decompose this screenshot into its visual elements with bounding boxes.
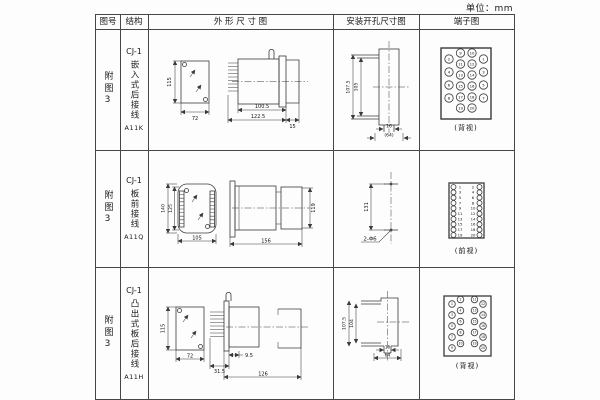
terminal-pin (451, 206, 456, 211)
terminal-number: 18 (470, 94, 475, 99)
dim-label: (64) (384, 133, 393, 139)
type-label: 凸出式板后接线 (128, 299, 140, 369)
terminal-number: 10 (471, 206, 476, 211)
terminal-number: 12 (471, 211, 476, 216)
code-label: A11H (124, 373, 144, 381)
terminal-number: 3 (451, 313, 453, 317)
header-structure: 结构 (120, 15, 148, 29)
terminal-number: 12 (470, 61, 475, 66)
dim-label: 72 (192, 116, 198, 122)
figure-text: 附图3 (102, 71, 115, 108)
dim-label: 9.5 (245, 353, 253, 359)
header-outline: 外 形 尺 寸 图 (148, 15, 333, 29)
model-label: CJ-1 (126, 286, 142, 295)
terminal-pin (451, 185, 456, 190)
terminal-pin (477, 211, 482, 216)
terminal-number: 6 (459, 320, 461, 324)
terminal-pin (477, 201, 482, 206)
front-view: 115 72 (161, 307, 205, 362)
terminal-number: 4 (448, 69, 451, 74)
terminal-number: 9 (459, 206, 462, 211)
mounting-diagram-a11q: 131 2-Φ6 (333, 150, 419, 267)
mounting-diagram-a11k: 107.5 105 16 (64) (333, 29, 419, 150)
terminal-number: 20 (481, 346, 485, 350)
terminal-number: 19 (472, 342, 476, 346)
dim-label: 115 (161, 324, 167, 334)
dim-label: 105 (354, 83, 360, 92)
terminal-pin (451, 227, 456, 232)
terminal-pin (477, 190, 482, 195)
type-label: 板前接线 (128, 189, 140, 229)
unit-label: 单位：mm (400, 1, 513, 14)
terminal-number: 3 (459, 190, 462, 195)
dim-label: 16 (386, 124, 392, 130)
terminal-pin (451, 190, 456, 195)
header-mounting: 安装开孔尺寸图 (333, 15, 419, 29)
structure-a11h: CJ-1 凸出式板后接线 A11H (120, 267, 148, 399)
dim-label: 107.5 (342, 317, 348, 330)
model-label: CJ-1 (126, 176, 142, 185)
dim-label: 122.5 (251, 114, 265, 120)
figure-label-row3: 附图3 (96, 267, 120, 399)
terminal-number: 16 (470, 83, 475, 88)
terminal-number: 14 (471, 216, 476, 221)
dim-label: 131 (364, 202, 370, 212)
terminal-number: 6 (472, 195, 475, 200)
terminal-number: 5 (482, 82, 485, 87)
terminal-number: 5 (459, 195, 462, 200)
terminal-number: 19 (458, 232, 463, 237)
terminal-number: 13 (458, 72, 463, 77)
terminal-number: 4 (472, 190, 475, 195)
terminal-number: 11 (472, 298, 476, 302)
terminal-number: 8 (448, 95, 451, 100)
terminal-pin (451, 233, 456, 238)
header-figure: 图号 (96, 15, 120, 29)
terminal-number: 13 (472, 309, 476, 313)
terminal-pin (451, 201, 456, 206)
terminal-pin (477, 227, 482, 232)
terminal-pin (477, 222, 482, 227)
dim-label: 15 (289, 124, 295, 130)
structure-a11q: CJ-1 板前接线 A11Q (120, 150, 148, 267)
terminal-pin (477, 233, 482, 238)
terminal-number: 11 (458, 61, 463, 66)
dim-label: 64 (385, 353, 391, 359)
terminal-pins (210, 312, 224, 337)
dim-label: 125 (168, 204, 174, 213)
terminal-number: 7 (451, 335, 453, 339)
dim-label: 104 (349, 319, 355, 328)
figure-label-row2: 附图3 (96, 150, 120, 267)
terminal-number: 14 (481, 313, 485, 317)
terminal-number: 3 (482, 69, 485, 74)
terminal-number: 7 (459, 200, 462, 205)
terminal-pin (451, 195, 456, 200)
terminal-number: 2 (459, 298, 461, 302)
view-caption: (前视) (455, 246, 478, 255)
model-label: CJ-1 (126, 47, 142, 56)
dim-label: 115 (167, 77, 173, 87)
header-terminal: 端子图 (419, 15, 514, 29)
terminal-pin (477, 185, 482, 190)
terminal-number: 8 (459, 331, 461, 335)
terminal-number: 1 (482, 56, 485, 61)
terminal-number: 16 (471, 222, 476, 227)
view-caption: (背视) (454, 123, 477, 132)
front-view: 115 72 (167, 61, 209, 122)
terminal-number: 16 (481, 324, 485, 328)
terminal-number: 17 (472, 331, 476, 335)
structure-a11k: CJ-1 嵌入式后接线 A11K (120, 29, 148, 150)
terminal-number: 10 (458, 342, 462, 346)
terminal-number: 12 (481, 302, 485, 306)
terminal-diagram-a11k: 2468911131517191012141618201357 (背视) (419, 29, 514, 150)
code-label: A11K (125, 124, 144, 132)
terminal-pin (451, 217, 456, 222)
type-label: 嵌入式后接线 (128, 60, 140, 120)
top-clip (269, 50, 274, 60)
dim-label: 156 (261, 239, 271, 245)
front-view: 140 125 105 (161, 184, 217, 244)
terminal-number: 15 (472, 320, 476, 324)
terminal-diagram-a11q: 1357911131517192468101214161820 (前视) (419, 150, 514, 267)
dim-label: 119 (311, 203, 317, 213)
terminal-number: 1 (459, 184, 462, 189)
view-caption: (背视) (456, 361, 479, 370)
terminal-diagram-a11h: 1357924681011131517191214161820 (背视) (419, 267, 514, 399)
terminal-grid: 2468911131517191012141618201357 (445, 49, 488, 112)
outline-diagram-a11h: 115 72 9.5 31.5 126 (148, 267, 333, 399)
terminal-number: 15 (458, 83, 463, 88)
terminal-number: 5 (451, 324, 453, 328)
dim-label: 100.5 (255, 104, 269, 110)
terminal-number: 15 (458, 222, 463, 227)
terminal-number: 7 (482, 95, 485, 100)
figure-label-row1: 附图3 (96, 29, 120, 150)
side-view: 9.5 31.5 126 (210, 293, 308, 381)
side-view: 100.5 122.5 15 (228, 50, 308, 131)
terminal-number: 19 (458, 105, 463, 110)
outline-diagram-a11k: 115 72 100.5 122.5 15 (148, 29, 333, 150)
hole-label: 2-Φ6 (363, 237, 377, 243)
mounting-diagram-a11h: 107.5 104 16 64 (333, 267, 419, 399)
figure-text: 附图3 (102, 315, 115, 352)
dim-label: 31.5 (214, 369, 225, 375)
terminal-number: 13 (458, 216, 463, 221)
terminal-number: 9 (451, 346, 453, 350)
dim-label: 107.5 (346, 80, 352, 93)
terminal-number: 18 (471, 227, 476, 232)
terminal-number: 4 (459, 309, 461, 313)
terminal-number: 18 (481, 335, 485, 339)
terminal-number: 6 (448, 82, 451, 87)
terminal-number: 8 (472, 200, 475, 205)
terminal-number: 9 (459, 50, 462, 55)
code-label: A11Q (124, 233, 144, 241)
terminal-pin (451, 211, 456, 216)
terminal-number: 17 (458, 94, 463, 99)
dim-label: 72 (187, 354, 193, 360)
terminal-number: 20 (470, 105, 475, 110)
top-clip (226, 293, 231, 302)
dim-label: 105 (192, 236, 202, 242)
terminal-pin (451, 222, 456, 227)
terminal-number: 20 (471, 232, 476, 237)
terminal-number: 2 (472, 184, 475, 189)
outline-diagram-a11q: 140 125 105 156 119 (148, 150, 333, 267)
terminal-pin (477, 217, 482, 222)
dim-label: 16 (385, 345, 391, 350)
dim-label: 140 (161, 204, 167, 213)
terminal-pin (477, 195, 482, 200)
terminal-number: 14 (470, 72, 475, 77)
spec-table: 图号 结构 外 形 尺 寸 图 安装开孔尺寸图 端子图 附图3 附图3 附图3 … (95, 14, 515, 400)
figure-text: 附图3 (102, 190, 115, 227)
terminal-pins (228, 63, 238, 91)
dim-label: 126 (258, 372, 268, 378)
terminal-number: 10 (470, 50, 475, 55)
terminal-grid: 1357911131517192468101214161820 (451, 184, 482, 237)
terminal-number: 1 (451, 302, 453, 306)
terminal-grid: 1357924681011131517191214161820 (449, 296, 487, 351)
terminal-pin (477, 206, 482, 211)
terminal-number: 11 (458, 211, 463, 216)
side-view: 156 119 (230, 181, 317, 247)
terminal-number: 2 (448, 56, 451, 61)
terminal-number: 17 (458, 227, 463, 232)
